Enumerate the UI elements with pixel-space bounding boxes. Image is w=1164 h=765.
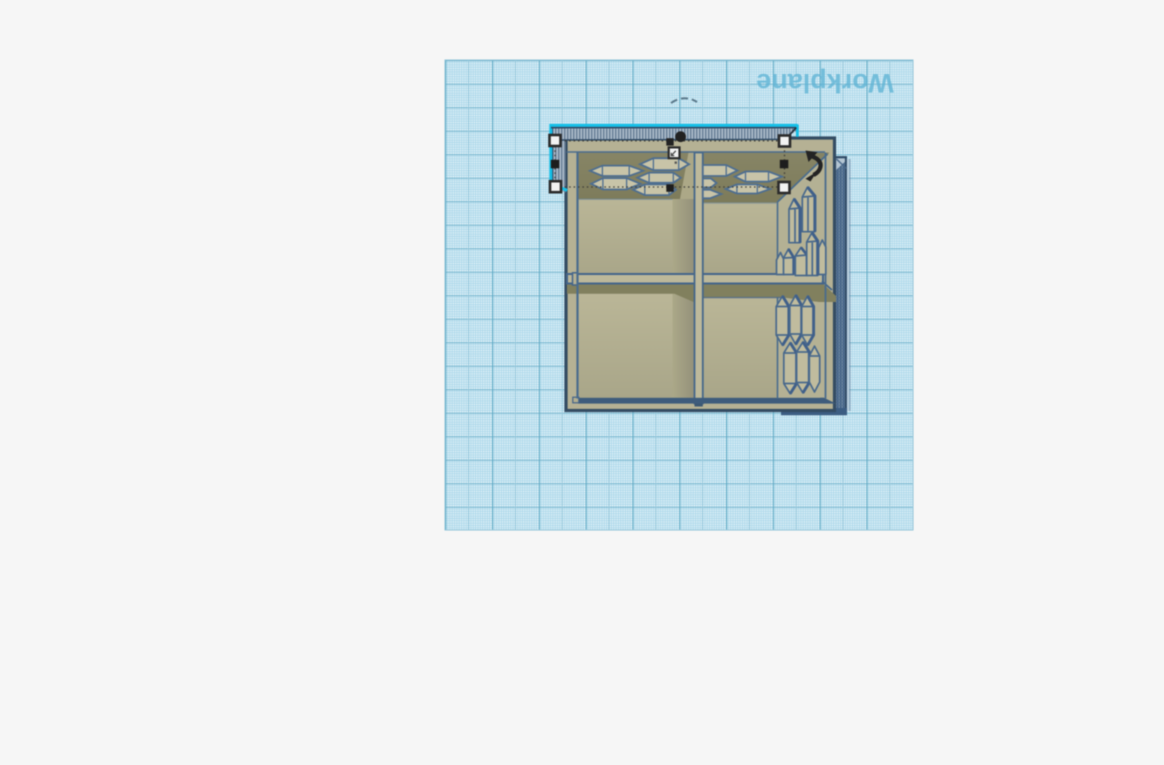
- svg-text:Workplane: Workplane: [756, 68, 894, 98]
